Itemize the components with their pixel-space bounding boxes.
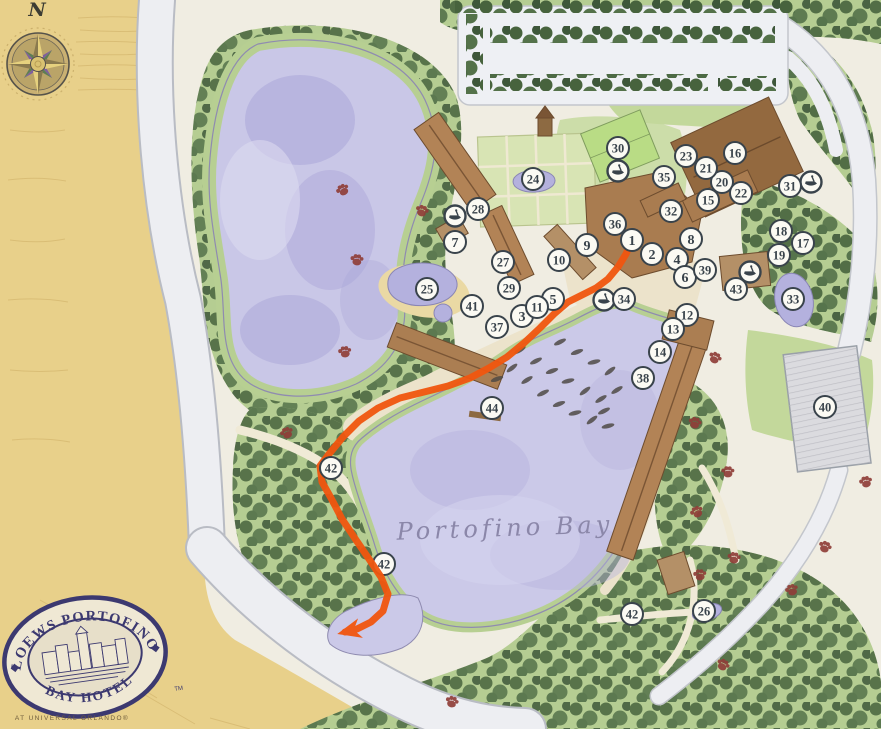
map-marker-9: 9 [576, 234, 598, 256]
resort-map-screenshot: 42 1234567891011121314151617181920212223… [0, 0, 881, 729]
marker-number: 16 [729, 147, 742, 161]
map-marker-23: 23 [675, 145, 697, 167]
marker-number: 15 [702, 194, 715, 208]
marker-number: 2 [649, 248, 656, 263]
marker-number: 9 [584, 239, 591, 254]
map-marker-25: 25 [416, 278, 438, 300]
marker-number: 43 [730, 283, 743, 297]
logo-subtext: AT UNIVERSAL ORLANDO® [15, 714, 129, 722]
marker-number: 44 [486, 402, 499, 416]
marker-number: 23 [680, 150, 693, 164]
map-marker-13: 13 [662, 318, 684, 340]
marker-number: 14 [654, 346, 667, 360]
marker-number: 26 [698, 605, 711, 619]
map-marker-44: 44 [481, 397, 503, 419]
marker-number: 12 [681, 309, 694, 323]
marker-number: 17 [797, 237, 810, 251]
marker-number: 20 [716, 176, 729, 190]
map-marker-1: 1 [621, 229, 643, 251]
map-marker-27: 27 [492, 251, 514, 273]
marker-number: 25 [421, 283, 434, 297]
map-marker-34: 34 [613, 288, 635, 310]
map-marker-29: 29 [498, 277, 520, 299]
water-taxi-stop-icon [801, 172, 822, 193]
marker-number: 37 [491, 321, 504, 335]
map-marker-35: 35 [653, 166, 675, 188]
marker-number: 21 [700, 162, 713, 176]
marker-number: 18 [775, 225, 788, 239]
water-taxi-stop-icon [608, 161, 629, 182]
marker-number: 5 [550, 293, 557, 308]
marker-number: 40 [819, 401, 832, 415]
map-marker-2: 2 [641, 243, 663, 265]
marker-number: 7 [452, 236, 459, 251]
map-marker-16: 16 [724, 142, 746, 164]
map-marker-42: 42 [621, 603, 643, 625]
marker-number: 34 [618, 293, 631, 307]
map-marker-18: 18 [770, 220, 792, 242]
map-marker-6: 6 [674, 266, 696, 288]
marker-number: 42 [325, 462, 338, 476]
map-marker-10: 10 [548, 249, 570, 271]
water-taxi-stop-icon [594, 290, 615, 311]
marker-number: 3 [519, 310, 526, 325]
marker-number: 38 [637, 372, 650, 386]
marker-number: 29 [503, 282, 516, 296]
marker-number: 11 [531, 301, 543, 315]
map-marker-31: 31 [779, 175, 801, 197]
marker-number: 35 [658, 171, 671, 185]
marker-number: 41 [466, 300, 479, 314]
map-marker-19: 19 [768, 244, 790, 266]
water-taxi-stop-icon [445, 206, 466, 227]
marker-number: 22 [735, 187, 748, 201]
map-marker-36: 36 [604, 213, 626, 235]
marker-number: 28 [472, 203, 485, 217]
map-marker-43: 43 [725, 278, 747, 300]
marker-number: 8 [688, 233, 695, 248]
map-marker-41: 41 [461, 295, 483, 317]
map-marker-28: 28 [467, 198, 489, 220]
marker-number: 13 [667, 323, 680, 337]
map-marker-21: 21 [695, 157, 717, 179]
resort-map: 42 1234567891011121314151617181920212223… [0, 0, 881, 729]
map-marker-40: 40 [814, 396, 836, 418]
north-label: N [27, 0, 46, 21]
map-marker-15: 15 [697, 189, 719, 211]
marker-number: 39 [699, 264, 712, 278]
map-marker-14: 14 [649, 341, 671, 363]
marker-number: 4 [674, 253, 681, 268]
marker-number: 6 [682, 271, 689, 286]
map-marker-24: 24 [522, 168, 544, 190]
map-marker-26: 26 [693, 600, 715, 622]
marker-number: 32 [665, 205, 678, 219]
marker-number: 19 [773, 249, 786, 263]
logo-tm: TM [174, 686, 183, 693]
map-marker-17: 17 [792, 232, 814, 254]
marker-number: 31 [784, 180, 797, 194]
map-marker-7: 7 [444, 231, 466, 253]
marker-number: 1 [629, 234, 636, 249]
map-marker-22: 22 [730, 182, 752, 204]
map-marker-11: 11 [526, 296, 548, 318]
marker-number: 27 [497, 256, 510, 270]
marker-number: 33 [787, 293, 800, 307]
map-marker-38: 38 [632, 367, 654, 389]
map-marker-32: 32 [660, 200, 682, 222]
marker-number: 36 [609, 218, 622, 232]
marker-number: 42 [626, 608, 639, 622]
map-marker-33: 33 [782, 288, 804, 310]
marker-number: 24 [527, 173, 540, 187]
marker-number: 10 [553, 254, 566, 268]
marker-number: 30 [612, 142, 625, 156]
map-marker-39: 39 [694, 259, 716, 281]
map-marker-30: 30 [607, 137, 629, 159]
map-marker-42: 42 [320, 457, 342, 479]
map-marker-8: 8 [680, 228, 702, 250]
map-marker-37: 37 [486, 316, 508, 338]
parking-lot-north [455, 0, 795, 105]
